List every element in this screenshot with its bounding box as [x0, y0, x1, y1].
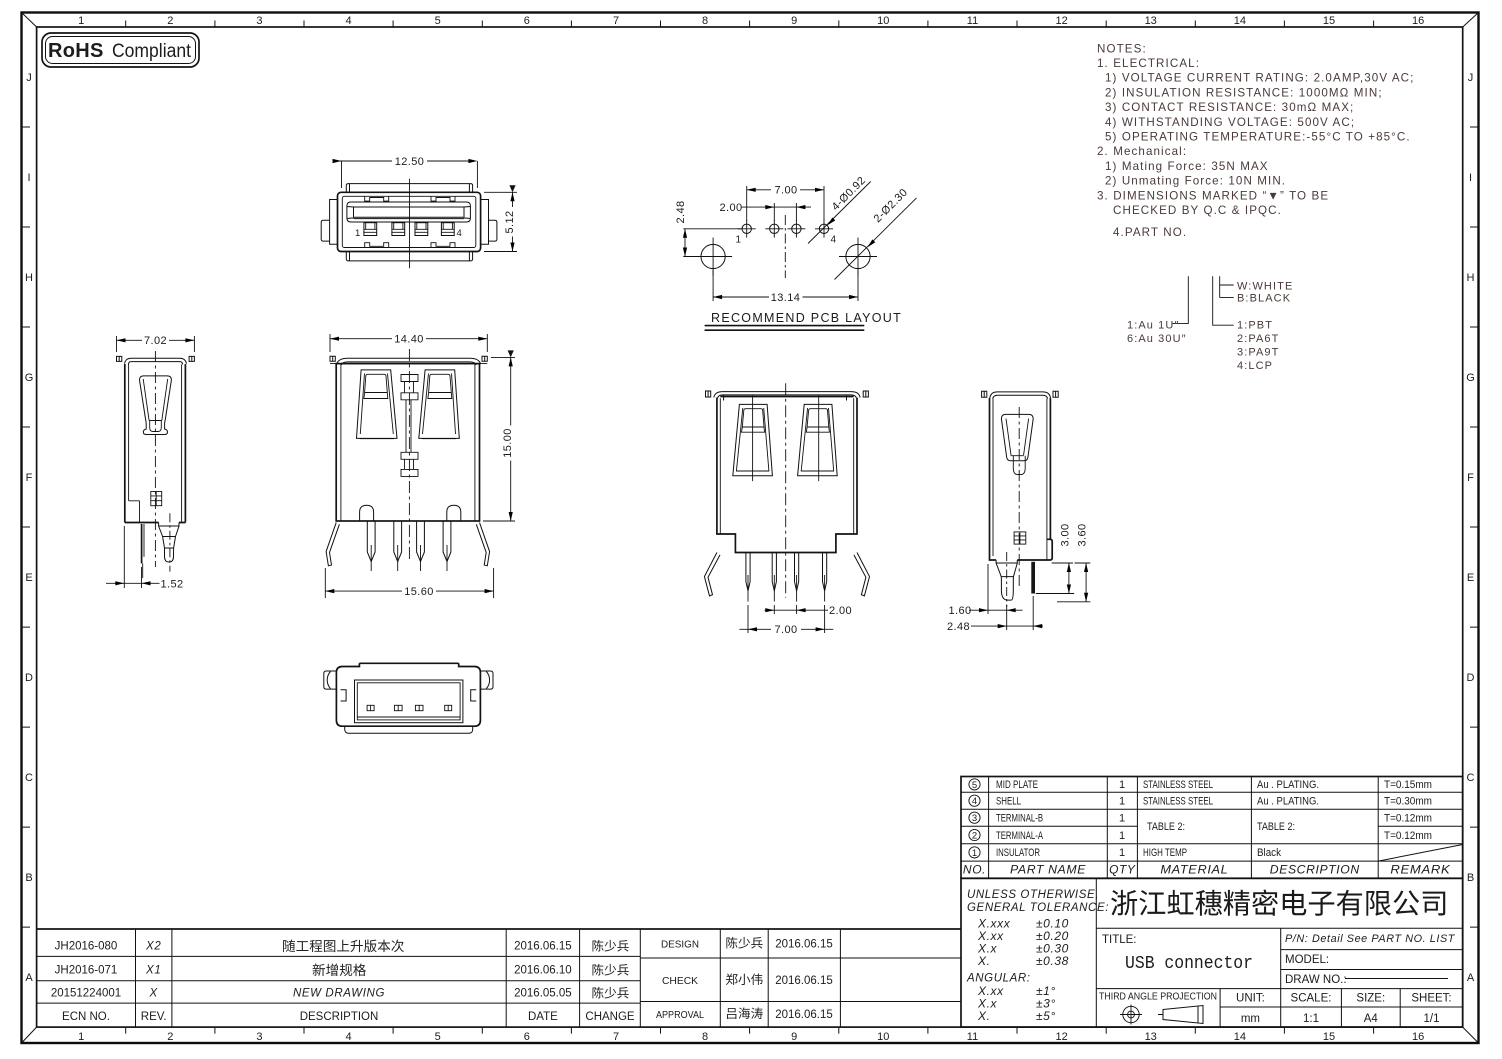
svg-text:2.48: 2.48	[675, 200, 687, 223]
svg-text:DESCRIPTION: DESCRIPTION	[1270, 863, 1360, 877]
svg-text:D: D	[1467, 672, 1475, 684]
svg-text:2016.06.10: 2016.06.10	[514, 965, 572, 977]
svg-text:1.60: 1.60	[949, 605, 972, 617]
svg-text:9: 9	[791, 15, 797, 27]
svg-text:15.60: 15.60	[404, 586, 434, 598]
svg-text:1.52: 1.52	[161, 578, 184, 590]
svg-text:B: B	[1467, 872, 1474, 884]
svg-text:1) Mating Force: 35N MAX: 1) Mating Force: 35N MAX	[1105, 160, 1269, 173]
svg-text:PART NAME: PART NAME	[1010, 863, 1086, 877]
svg-text:9: 9	[791, 1031, 797, 1043]
svg-text:20151224001: 20151224001	[51, 988, 121, 1000]
svg-text:NEW DRAWING: NEW DRAWING	[293, 988, 385, 1000]
svg-text:1: 1	[1119, 779, 1125, 791]
svg-text:12: 12	[1055, 1031, 1067, 1043]
svg-text:USB connector: USB connector	[1125, 954, 1253, 974]
svg-text:5: 5	[972, 780, 977, 791]
svg-text:I: I	[27, 172, 30, 184]
svg-text:2016.05.05: 2016.05.05	[514, 988, 572, 1000]
svg-text:X1: X1	[145, 965, 161, 977]
svg-text:X.: X.	[977, 1009, 991, 1023]
svg-text:1: 1	[1119, 847, 1125, 859]
svg-text:14: 14	[1234, 15, 1246, 27]
svg-text:15: 15	[1323, 1031, 1335, 1043]
svg-text:F: F	[1467, 472, 1474, 484]
svg-text:A: A	[1467, 972, 1475, 984]
svg-text:1: 1	[1119, 796, 1125, 808]
svg-text:ECN NO.: ECN NO.	[62, 1011, 110, 1023]
svg-text:14: 14	[1234, 1031, 1246, 1043]
svg-text:UNLESS OTHERWISE,: UNLESS OTHERWISE,	[967, 889, 1099, 901]
svg-text:T=0.15mm: T=0.15mm	[1384, 779, 1432, 791]
svg-text:7: 7	[613, 1031, 619, 1043]
svg-text:1: 1	[1119, 813, 1125, 825]
svg-text:2016.06.15: 2016.06.15	[775, 939, 833, 951]
svg-text:REMARK: REMARK	[1390, 863, 1450, 877]
svg-text:TITLE:: TITLE:	[1102, 934, 1137, 946]
svg-text:4: 4	[972, 796, 977, 807]
svg-text:7.02: 7.02	[144, 335, 167, 347]
svg-text:3: 3	[256, 1031, 262, 1043]
svg-text:14.40: 14.40	[394, 334, 424, 346]
svg-text:E: E	[1467, 572, 1474, 584]
svg-text:Black: Black	[1257, 847, 1281, 859]
svg-text:G: G	[1466, 372, 1475, 384]
svg-text:2. Mechanical:: 2. Mechanical:	[1097, 145, 1187, 158]
svg-text:1/1: 1/1	[1424, 1013, 1440, 1025]
svg-text:JH2016-080: JH2016-080	[55, 941, 118, 953]
svg-text:13: 13	[1145, 15, 1157, 27]
svg-text:8: 8	[702, 1031, 708, 1043]
svg-text:5: 5	[435, 15, 441, 27]
svg-text:3) CONTACT RESISTANCE: 30mΩ MA: 3) CONTACT RESISTANCE: 30mΩ MAX;	[1105, 101, 1354, 114]
svg-text:2:PA6T: 2:PA6T	[1237, 333, 1279, 345]
svg-text:SIZE:: SIZE:	[1356, 993, 1385, 1005]
svg-text:UNIT:: UNIT:	[1236, 993, 1265, 1005]
svg-text:13.14: 13.14	[771, 292, 801, 304]
svg-text:2: 2	[167, 1031, 173, 1043]
svg-text:2: 2	[167, 15, 173, 27]
svg-text:12: 12	[1055, 15, 1067, 27]
svg-text:2) INSULATION RESISTANCE: 1000: 2) INSULATION RESISTANCE: 1000MΩ MIN;	[1105, 86, 1383, 99]
svg-text:C: C	[1467, 772, 1475, 784]
svg-text:7.00: 7.00	[774, 185, 797, 197]
svg-text:1:Au 1U″: 1:Au 1U″	[1127, 320, 1179, 332]
svg-text:7: 7	[613, 15, 619, 27]
svg-text:DESIGN: DESIGN	[661, 939, 699, 951]
svg-text:11: 11	[967, 1031, 978, 1043]
svg-text:3.60: 3.60	[1077, 523, 1089, 546]
svg-text:13: 13	[1145, 1031, 1157, 1043]
svg-text:5) OPERATING TEMPERATURE:-55°C: 5) OPERATING TEMPERATURE:-55°C TO +85°C.	[1105, 131, 1411, 144]
svg-text:MODEL:: MODEL:	[1285, 954, 1329, 966]
svg-text:CHANGE: CHANGE	[585, 1011, 635, 1023]
svg-text:TERMINAL-B: TERMINAL-B	[996, 813, 1043, 825]
svg-text:X.: X.	[977, 954, 991, 968]
svg-text:THIRD ANGLE PROJECTION: THIRD ANGLE PROJECTION	[1099, 992, 1217, 1003]
svg-text:SHEET:: SHEET:	[1411, 993, 1451, 1005]
svg-text:NO.: NO.	[963, 863, 986, 877]
svg-text:1: 1	[1119, 830, 1125, 842]
svg-text:I: I	[1469, 172, 1472, 184]
svg-text:H: H	[25, 272, 33, 284]
svg-text:16: 16	[1412, 1031, 1424, 1043]
svg-text:6: 6	[524, 1031, 530, 1043]
svg-text:B:BLACK: B:BLACK	[1237, 293, 1291, 305]
svg-text:4: 4	[831, 235, 837, 246]
svg-text:APPROVAL: APPROVAL	[656, 1009, 704, 1021]
svg-text:INSULATOR: INSULATOR	[996, 847, 1040, 859]
svg-text:JH2016-071: JH2016-071	[55, 965, 118, 977]
svg-text:1: 1	[972, 848, 977, 859]
svg-text:2.00: 2.00	[829, 605, 852, 617]
svg-text:4.PART NO.: 4.PART NO.	[1113, 226, 1187, 239]
svg-text:STAINLESS STEEL: STAINLESS STEEL	[1143, 779, 1213, 791]
svg-text:±0.38: ±0.38	[1036, 954, 1069, 968]
svg-text:DATE: DATE	[528, 1011, 558, 1023]
svg-text:D: D	[25, 672, 33, 684]
svg-text:Au . PLATING.: Au . PLATING.	[1257, 796, 1319, 808]
svg-text:2016.06.15: 2016.06.15	[775, 975, 833, 987]
svg-text:T=0.30mm: T=0.30mm	[1384, 796, 1432, 808]
svg-text:T=0.12mm: T=0.12mm	[1384, 813, 1432, 825]
svg-text:7.00: 7.00	[774, 624, 797, 636]
svg-text:CHECKED BY Q.C & IPQC.: CHECKED BY Q.C & IPQC.	[1113, 204, 1282, 217]
svg-text:1) VOLTAGE CURRENT RATING: 2.0: 1) VOLTAGE CURRENT RATING: 2.0AMP,30V AC…	[1105, 72, 1414, 85]
svg-text:15: 15	[1323, 15, 1335, 27]
svg-text:GENERAL TOLERANCE:: GENERAL TOLERANCE:	[967, 902, 1109, 914]
svg-text:5.12: 5.12	[504, 210, 516, 233]
svg-text:4: 4	[346, 1031, 352, 1043]
svg-text:MID PLATE: MID PLATE	[996, 779, 1038, 791]
svg-text:A4: A4	[1364, 1013, 1379, 1025]
svg-text:HIGH TEMP: HIGH TEMP	[1143, 847, 1187, 859]
svg-text:4: 4	[457, 228, 463, 239]
svg-text:1:PBT: 1:PBT	[1237, 320, 1273, 332]
svg-text:NOTES:: NOTES:	[1097, 42, 1147, 55]
svg-text:3: 3	[256, 15, 262, 27]
svg-text:J: J	[26, 72, 32, 84]
svg-text:3:PA9T: 3:PA9T	[1237, 347, 1279, 359]
svg-text:2016.06.15: 2016.06.15	[775, 1009, 833, 1021]
svg-text:F: F	[26, 472, 33, 484]
svg-text:B: B	[25, 872, 32, 884]
svg-text:4: 4	[346, 15, 352, 27]
svg-text:1: 1	[78, 1031, 84, 1043]
svg-text:TERMINAL-A: TERMINAL-A	[996, 830, 1043, 842]
svg-text:J: J	[1468, 72, 1474, 84]
svg-text:SCALE:: SCALE:	[1291, 993, 1332, 1005]
svg-text:ANGULAR:: ANGULAR:	[966, 973, 1031, 985]
svg-text:2.48: 2.48	[947, 621, 970, 633]
svg-text:W:WHITE: W:WHITE	[1237, 281, 1293, 293]
svg-text:A: A	[25, 972, 33, 984]
svg-text:TABLE 2:: TABLE 2:	[1257, 821, 1295, 833]
svg-text:3: 3	[972, 813, 977, 824]
svg-text:3.00: 3.00	[1059, 523, 1071, 546]
svg-text:X: X	[149, 988, 159, 1000]
svg-text:10: 10	[877, 1031, 889, 1043]
svg-text:1: 1	[736, 235, 742, 246]
svg-text:10: 10	[877, 15, 889, 27]
svg-text:2: 2	[972, 830, 977, 841]
svg-text:12.50: 12.50	[395, 156, 425, 168]
svg-text:E: E	[25, 572, 32, 584]
svg-text:5: 5	[435, 1031, 441, 1043]
svg-text:G: G	[25, 372, 34, 384]
svg-text:DESCRIPTION: DESCRIPTION	[300, 1011, 379, 1023]
svg-text:11: 11	[967, 15, 978, 27]
svg-text:CHECK: CHECK	[662, 975, 698, 987]
svg-text:2016.06.15: 2016.06.15	[514, 941, 572, 953]
svg-text:4:LCP: 4:LCP	[1237, 360, 1273, 372]
svg-text:mm: mm	[1241, 1013, 1260, 1025]
svg-text:P/N: Detail See PART NO. LIST: P/N: Detail See PART NO. LIST	[1285, 933, 1456, 945]
svg-text:RoHS: RoHS	[48, 40, 104, 62]
svg-text:RECOMMEND PCB LAYOUT: RECOMMEND PCB LAYOUT	[711, 311, 902, 325]
svg-text:STAINLESS STEEL: STAINLESS STEEL	[1143, 796, 1213, 808]
svg-text:6:Au 30U″: 6:Au 30U″	[1127, 333, 1187, 345]
svg-text:4) WITHSTANDING VOLTAGE: 500V: 4) WITHSTANDING VOLTAGE: 500V AC;	[1105, 116, 1355, 129]
svg-text:1. ELECTRICAL:: 1. ELECTRICAL:	[1097, 57, 1200, 70]
svg-text:MATERIAL: MATERIAL	[1160, 863, 1228, 877]
svg-text:T=0.12mm: T=0.12mm	[1384, 830, 1432, 842]
svg-text:±5°: ±5°	[1036, 1009, 1056, 1023]
svg-text:QTY: QTY	[1109, 863, 1136, 877]
svg-text:1:1: 1:1	[1303, 1013, 1319, 1025]
svg-text:2.00: 2.00	[720, 202, 743, 214]
svg-text:DRAW NO.:: DRAW NO.:	[1285, 974, 1347, 986]
svg-text:15.00: 15.00	[502, 428, 514, 458]
svg-text:TABLE 2:: TABLE 2:	[1147, 821, 1185, 833]
svg-text:2) Unmating Force: 10N MIN.: 2) Unmating Force: 10N MIN.	[1105, 175, 1286, 188]
svg-text:H: H	[1467, 272, 1475, 284]
svg-text:8: 8	[702, 15, 708, 27]
svg-text:1: 1	[78, 15, 84, 27]
svg-text:3. DIMENSIONS MARKED “▼” TO BE: 3. DIMENSIONS MARKED “▼” TO BE	[1097, 189, 1329, 202]
svg-text:6: 6	[524, 15, 530, 27]
svg-text:Compliant: Compliant	[112, 41, 192, 62]
svg-text:X2: X2	[145, 941, 161, 953]
svg-text:Au . PLATING.: Au . PLATING.	[1257, 779, 1319, 791]
svg-text:SHELL: SHELL	[996, 796, 1021, 808]
svg-text:C: C	[25, 772, 33, 784]
svg-text:1: 1	[355, 228, 361, 239]
svg-text:REV.: REV.	[141, 1011, 167, 1023]
svg-text:16: 16	[1412, 15, 1424, 27]
